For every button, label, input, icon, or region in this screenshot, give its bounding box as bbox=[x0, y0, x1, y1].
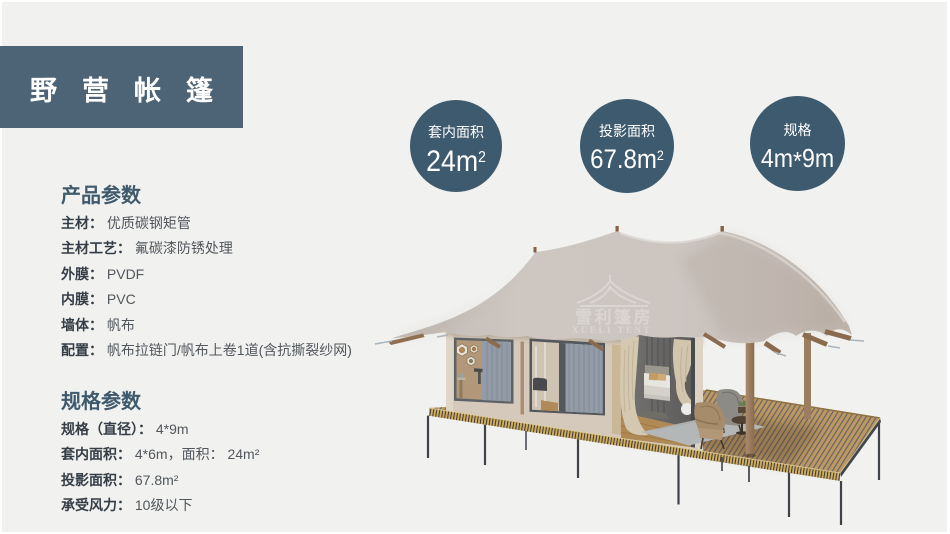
svg-text:雪利篷房: 雪利篷房 bbox=[575, 307, 653, 327]
svg-text:XUELI TENT: XUELI TENT bbox=[572, 325, 652, 335]
